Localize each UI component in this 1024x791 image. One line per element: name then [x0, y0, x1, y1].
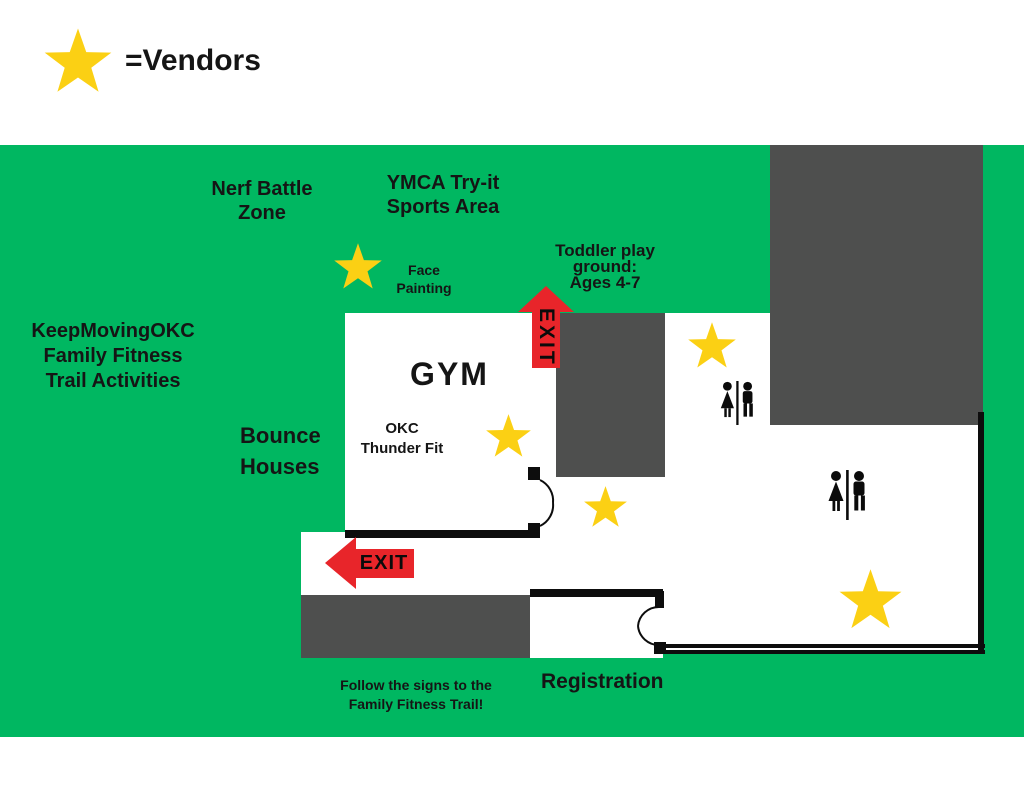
gray-block-top-right — [770, 145, 983, 425]
zone-label-keepmovingokc: KeepMovingOKC Family Fitness Trail Activ… — [13, 319, 213, 394]
arrow-head — [325, 537, 356, 589]
gym-double-door-icon — [528, 478, 558, 528]
exit-left-label: EXIT — [354, 549, 414, 578]
vendor-star-icon — [583, 486, 628, 528]
event-map-flyer: =Vendors EXIT EXIT Nerf Batt — [0, 0, 1024, 791]
exit-arrow-left-icon: EXIT — [325, 537, 414, 590]
legend-vendor-star-icon — [43, 28, 113, 94]
zone-label-toddler-playground: Toddler play ground: Ages 4-7 — [520, 243, 690, 291]
zone-label-follow-signs: Follow the signs to the Family Fitness T… — [316, 676, 516, 714]
zone-label-okc-thunder-fit: OKC Thunder Fit — [332, 419, 472, 459]
vendor-star-icon — [838, 569, 903, 630]
vendor-star-icon — [485, 414, 532, 458]
restroom-icon — [716, 381, 759, 425]
lobby-bottom-wall-inner — [657, 650, 985, 654]
restroom-icon — [822, 470, 873, 520]
zone-label-face-painting: Face Painting — [374, 261, 474, 297]
zone-label-ymca-try-it: YMCA Try-it Sports Area — [343, 171, 543, 219]
lobby-right-wall — [978, 412, 984, 654]
registration-top-wall — [530, 589, 663, 597]
zone-label-gym: GYM — [347, 356, 552, 393]
lobby-bottom-wall-outer — [657, 644, 985, 648]
registration-double-door-icon — [633, 602, 661, 650]
legend-label: =Vendors — [125, 44, 261, 78]
gray-block-corridor — [301, 595, 530, 658]
zone-label-nerf-battle: Nerf Battle Zone — [162, 177, 362, 225]
zone-label-registration: Registration — [541, 670, 741, 694]
vendor-star-icon — [687, 322, 737, 369]
